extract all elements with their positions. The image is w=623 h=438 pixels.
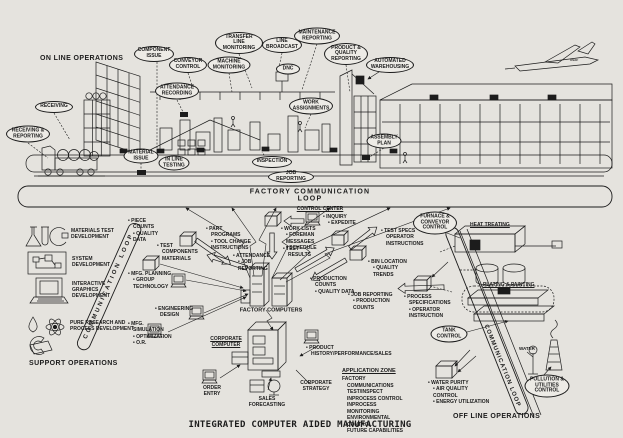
callout-transfer-line-monitoring: TRANSFER LINE MONITORING [215, 32, 263, 54]
support-pure-research-label: PURE RESEARCH AND PROCESS DEVELOPMENT [70, 320, 134, 332]
circuit-board-icon [28, 252, 66, 274]
list-test-components: • TEST COMPONENTS MATERIALS [157, 243, 198, 262]
process-specs-computer [414, 276, 431, 291]
truck-icon [38, 146, 105, 176]
callout-receiving: RECEIVING [35, 101, 73, 113]
automated-warehouse [380, 84, 612, 168]
list-part-programs: • PART PROGRAMS • TOOL CHANGE INSTRUCTIO… [206, 226, 251, 251]
callout-inspection: INSPECTION [252, 156, 292, 168]
callout-pollution-utilities-control: POLLUTION & UTILITIES CONTROL [525, 375, 570, 398]
list-water-purity: • WATER PURITY • AIR QUALITY CONTROL • E… [428, 380, 491, 405]
callout-attendance-recording: ATTENDANCE RECORDING [155, 83, 199, 100]
callout-maintenance-reporting: MAINTENANCE REPORTING [294, 28, 340, 45]
callout-work-assignments: WORK ASSIGNMENTS [289, 98, 333, 115]
order-entry-label: ORDER ENTRY [203, 385, 221, 397]
callout-conveyor-control: CONVEYOR CONTROL [169, 57, 207, 73]
list-application-zone: FACTORY COMMUNICATIONS TEST/INSPECT INPR… [342, 376, 409, 435]
callout-in-line-testing: IN LINE TESTING [159, 156, 190, 171]
list-process-specs: • PROCESS SPECIFICATIONS • OPERATOR INST… [404, 294, 461, 319]
plating-line [462, 286, 554, 321]
atom-icon [46, 317, 64, 336]
corporate-strategy-label: CORPORATE STRATEGY [300, 380, 332, 392]
support-materials-test-label: MATERIALS TEST DEVELOPMENT [71, 228, 114, 240]
application-zone-label: APPLICATION ZONE [342, 368, 396, 375]
callout-assembly-plan: ASSEMBLY PLAN [367, 134, 402, 149]
line-art-layer [0, 0, 623, 438]
callout-product-quality-reporting: PRODUCT & QUALITY REPORTING [324, 43, 368, 65]
callout-dnc: DNC [276, 64, 300, 75]
list-piece-counts: • PIECE COUNTS • QUALITY DATA [128, 218, 165, 243]
list-inquiry-expedite: • INQUIRY • EXPEDITE [323, 214, 358, 227]
corporate-computer-label: CORPORATE COMPUTER [210, 336, 242, 348]
flask-icon [26, 227, 41, 246]
test-tube-icon [41, 227, 49, 245]
heading-on-line-operations: ON LINE OPERATIONS [40, 55, 123, 62]
caliper-icon [50, 228, 68, 246]
callout-component-issue: COMPONENT ISSUE [134, 46, 174, 62]
callout-job-reporting: JOB REPORTING [268, 171, 314, 183]
airplane-icon [505, 42, 598, 71]
list-mfg-planning: • MFG. PLANNING • GROUP TECHNOLOGY [128, 271, 185, 290]
control-center-terminal [305, 212, 320, 225]
airplane-marking-label: USAF [570, 58, 578, 62]
factory-platform [26, 147, 612, 176]
factory-building [84, 62, 140, 156]
heading-off-line-operations: OFF LINE OPERATIONS [453, 413, 540, 420]
utilities-monitor-computer [436, 361, 457, 378]
list-product-history: • PRODUCT HISTORY/PERFORMANCE/SALES [306, 345, 383, 358]
list-mfg-simulation: • MFG. SIMULATION • OPTIMIZATION • O.R. [128, 321, 175, 346]
corporate-computer-icon [232, 322, 286, 377]
callout-machine-monitoring: MACHINE MONITORING [208, 57, 251, 74]
heat-treating-label: HEAT TREATING [470, 222, 510, 228]
list-test-results: • TEST RESULTS [283, 246, 318, 259]
plating-painting-label: PLATING & PAINTING [483, 282, 534, 288]
callout-material-issue: MATERIAL ISSUE [124, 149, 159, 164]
water-label: WATER [519, 346, 535, 351]
sales-forecasting-label: SALES FORECASTING [249, 396, 285, 408]
control-center-label: CONTROL CENTER [297, 206, 344, 212]
list-test-specs: • TEST SPECS OPERATOR INSTRUCTIONS [381, 228, 422, 247]
sales-forecasting-icon [250, 380, 280, 395]
list-attendance-job: • ATTENDANCE • JOB REPORTING [233, 253, 280, 272]
support-interactive-graphics-label: INTERACTIVE GRAPHICS DEVELOPMENT [72, 281, 110, 299]
heading-support-operations: SUPPORT OPERATIONS [29, 360, 118, 367]
smokestack-icon [546, 320, 562, 370]
callout-automated-warehousing: AUTOMATED WAREHOUSING [366, 57, 414, 73]
bin-location-computer [350, 246, 366, 260]
graphics-terminal-icon [30, 278, 68, 303]
droplet-icon [29, 317, 37, 332]
order-entry-terminal [202, 370, 217, 383]
magnet-icon [30, 336, 52, 354]
callout-tank-control: TANK CONTROL [431, 326, 468, 343]
support-system-development-label: SYSTEM DEVELOPMENT [72, 256, 110, 268]
list-engineering-design: • ENGINEERING DESIGN [155, 306, 196, 319]
factory-computers-label: FACTORY COMPUTERS [240, 308, 303, 315]
product-history-terminal [304, 330, 319, 343]
list-bin-location: • BIN LOCATION • QUALITY TRENDS [368, 259, 415, 278]
icam-diagram: ON LINE OPERATIONS SUPPORT OPERATIONS OF… [0, 0, 623, 438]
factory-communication-loop-label: FACTORY COMMUNICATION LOOP [250, 189, 371, 204]
list-job-production: • JOB REPORTING • PRODUCTION COUNTS [348, 292, 407, 311]
callout-receiving-reporting: RECEIVING & REPORTING [6, 126, 50, 143]
